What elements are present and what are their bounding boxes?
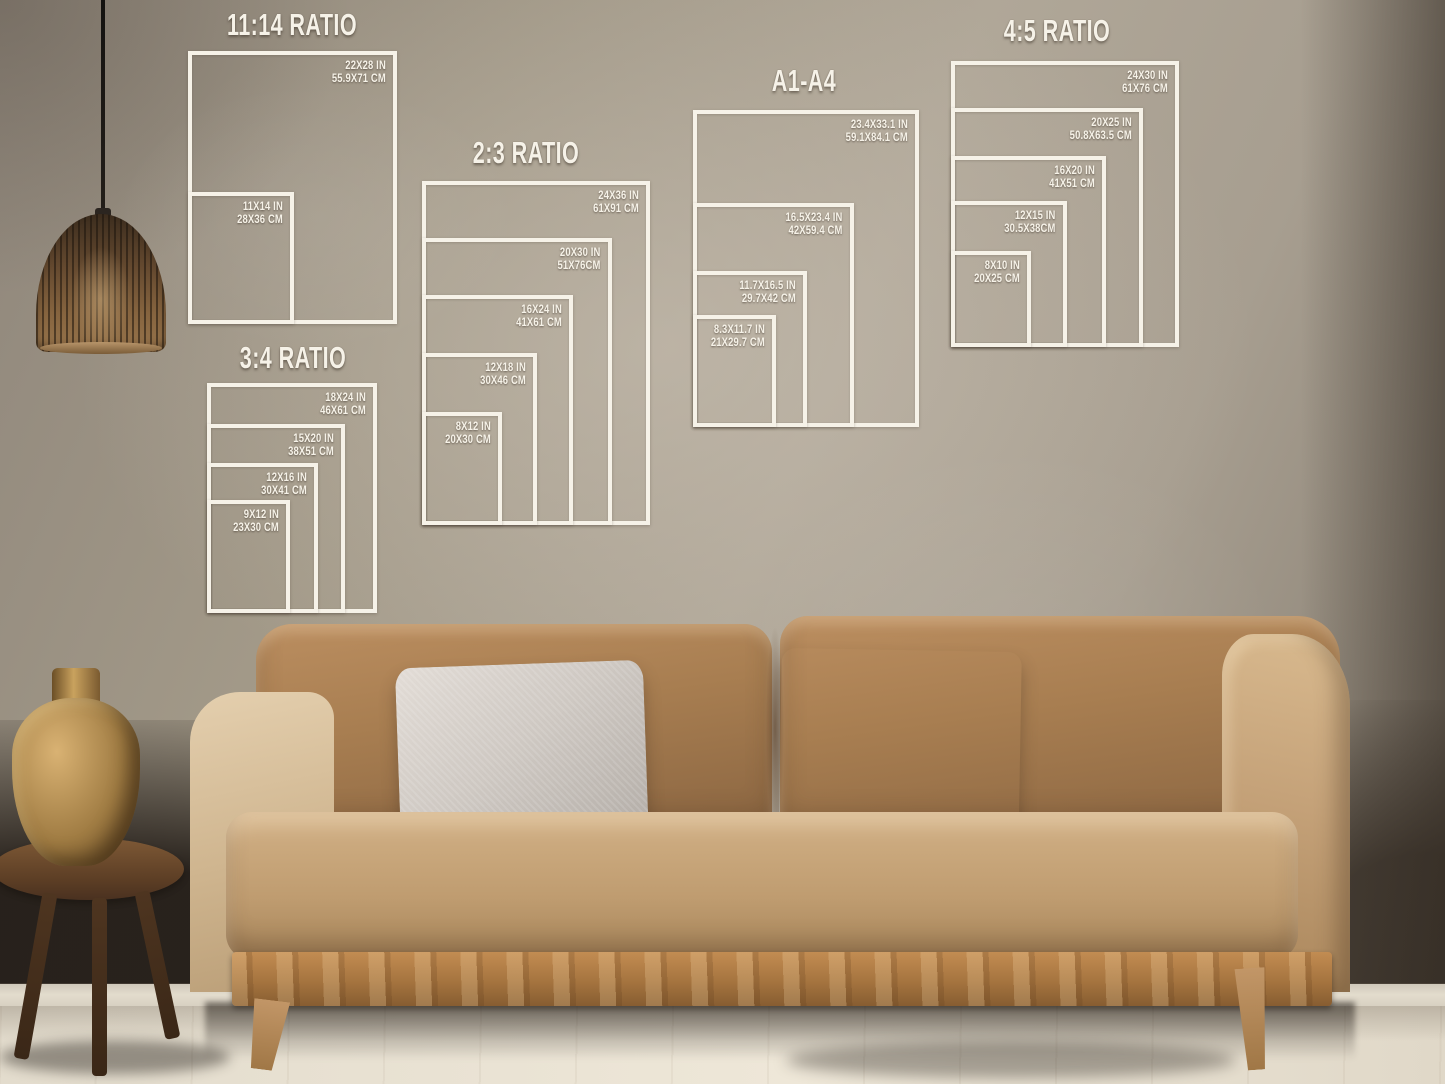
size-label: 11X14 IN28X36 CM — [237, 201, 283, 227]
size-label: 8X12 IN20X30 CM — [445, 421, 491, 447]
size-label: 22X28 IN55.9X71 CM — [332, 60, 386, 86]
panel-title-a1-a4: A1-A4 — [772, 64, 836, 99]
table-floor-shadow — [786, 1042, 1236, 1078]
size-rect-8x12: 8X12 IN20X30 CM — [422, 412, 502, 525]
size-rect-9x12: 9X12 IN23X30 CM — [207, 500, 290, 613]
size-label: 9X12 IN23X30 CM — [233, 509, 279, 535]
size-label: 23.4X33.1 IN59.1X84.1 CM — [846, 119, 908, 145]
size-label: 11.7X16.5 IN29.7X42 CM — [739, 280, 796, 306]
panel-title-3-4: 3:4 RATIO — [240, 341, 346, 376]
size-label: 12X16 IN30X41 CM — [261, 472, 307, 498]
size-label: 8X10 IN20X25 CM — [974, 260, 1020, 286]
size-label: 24X36 IN61X91 CM — [593, 190, 639, 216]
size-rect-8x10: 8X10 IN20X25 CM — [951, 251, 1031, 347]
panel-title-2-3: 2:3 RATIO — [473, 136, 579, 171]
size-label: 16.5X23.4 IN42X59.4 CM — [786, 212, 843, 238]
vase-opening — [988, 850, 1022, 861]
sofa-wood-base — [232, 952, 1332, 1006]
size-label: 16X24 IN41X61 CM — [516, 304, 562, 330]
size-label: 12X18 IN30X46 CM — [480, 362, 526, 388]
sofa-seat-cushion — [226, 812, 1298, 960]
size-label: 20X25 IN50.8X63.5 CM — [1070, 117, 1132, 143]
size-label: 12X15 IN30.5X38CM — [1005, 210, 1056, 236]
size-rect-a4: 8.3X11.7 IN21X29.7 CM — [693, 315, 776, 427]
stool-floor-shadow — [0, 1040, 230, 1074]
living-room-size-guide: { "scene": { "overlay_line_color": "#f6f… — [0, 0, 1445, 1084]
size-rect-11x14: 11X14 IN28X36 CM — [188, 192, 294, 324]
vase-opening — [1050, 882, 1080, 892]
pendant-lamp-rim — [40, 342, 162, 354]
panel-title-11-14: 11:14 RATIO — [227, 8, 357, 43]
panel-title-4-5: 4:5 RATIO — [1004, 14, 1110, 49]
size-label: 16X20 IN41X51 CM — [1049, 165, 1095, 191]
stool-leg — [92, 898, 107, 1076]
size-label: 20X30 IN51X76CM — [558, 247, 601, 273]
size-label: 18X24 IN46X61 CM — [320, 392, 366, 418]
pendant-cord — [101, 0, 105, 218]
brass-vase — [12, 698, 140, 866]
size-label: 15X20 IN38X51 CM — [288, 433, 334, 459]
size-label: 8.3X11.7 IN21X29.7 CM — [711, 324, 765, 350]
size-label: 24X30 IN61X76 CM — [1122, 70, 1168, 96]
